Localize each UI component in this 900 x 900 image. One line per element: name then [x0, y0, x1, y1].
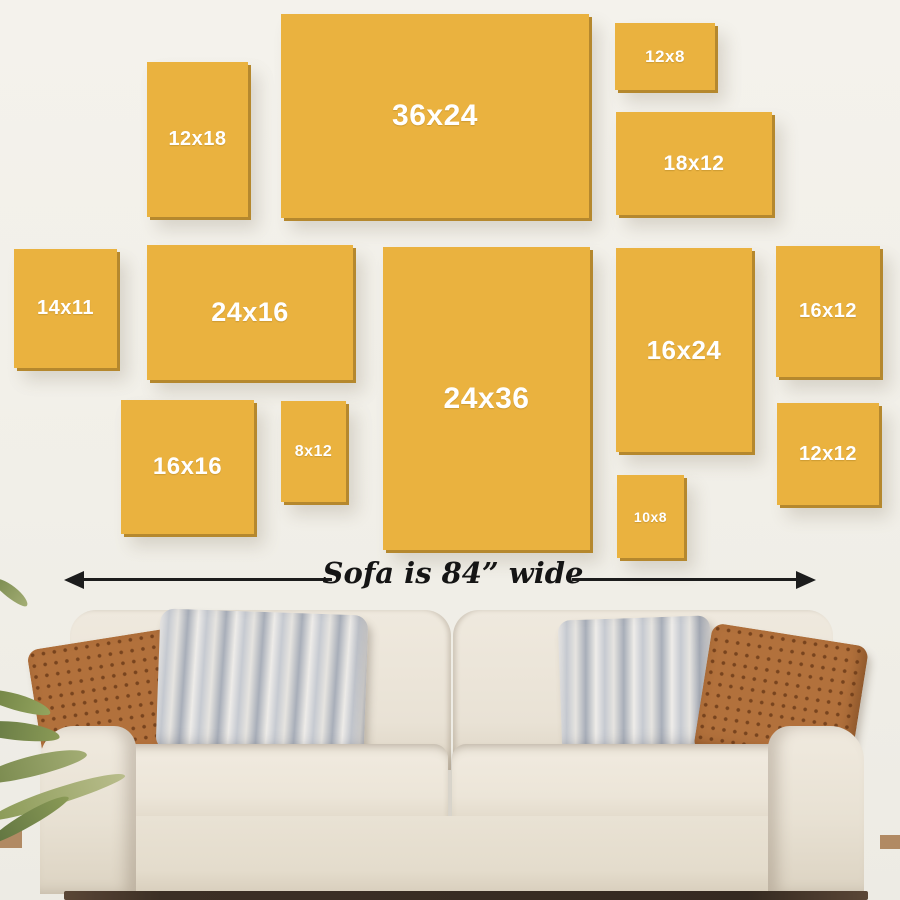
frame-art-24x36: 24x36: [383, 247, 590, 550]
frame-art-18x12: 18x12: [616, 112, 772, 215]
arrow-line-left: [80, 578, 332, 581]
frame-art-8x12: 8x12: [281, 401, 346, 502]
sofa-arm-right: [768, 726, 864, 894]
frame-size-label: 36x24: [392, 99, 478, 133]
frame-art-36x24: 36x24: [281, 14, 589, 218]
frame-art-16x24: 16x24: [616, 248, 752, 452]
pillow-stripe-right: [558, 615, 715, 754]
floor-shadow: [64, 891, 868, 900]
arrow-line-right: [572, 578, 800, 581]
frame-size-label: 18x12: [664, 152, 725, 176]
frame-size-label: 12x8: [645, 47, 685, 67]
sofa-base: [56, 816, 848, 894]
baseboard-right: [880, 835, 900, 849]
frame-size-label: 8x12: [295, 443, 333, 461]
frame-size-label: 16x24: [647, 335, 722, 366]
arrow-right-icon: [796, 571, 816, 589]
frame-size-label: 14x11: [37, 297, 94, 320]
wall-art-size-guide: 12x1836x2412x818x1214x1124x1624x3616x241…: [0, 0, 900, 900]
frame-art-14x11: 14x11: [14, 249, 117, 368]
pillow-stripe-left: [156, 608, 369, 757]
frame-art-16x12: 16x12: [776, 246, 880, 377]
frame-art-10x8: 10x8: [617, 475, 684, 558]
frame-size-label: 24x16: [211, 297, 289, 328]
frame-size-label: 12x18: [168, 128, 226, 151]
frame-art-12x8: 12x8: [615, 23, 715, 90]
frame-art-12x12: 12x12: [777, 403, 879, 505]
frame-size-label: 16x12: [799, 300, 857, 323]
frame-art-12x18: 12x18: [147, 62, 248, 217]
frame-size-label: 24x36: [444, 382, 530, 416]
frame-size-label: 12x12: [799, 443, 857, 466]
frame-size-label: 10x8: [634, 509, 667, 525]
frame-art-16x16: 16x16: [121, 400, 254, 534]
sofa-width-label: Sofa is 84” wide: [322, 556, 584, 590]
frame-art-24x16: 24x16: [147, 245, 353, 380]
plant-leaf-icon: [0, 574, 31, 609]
frame-size-label: 16x16: [153, 453, 222, 481]
